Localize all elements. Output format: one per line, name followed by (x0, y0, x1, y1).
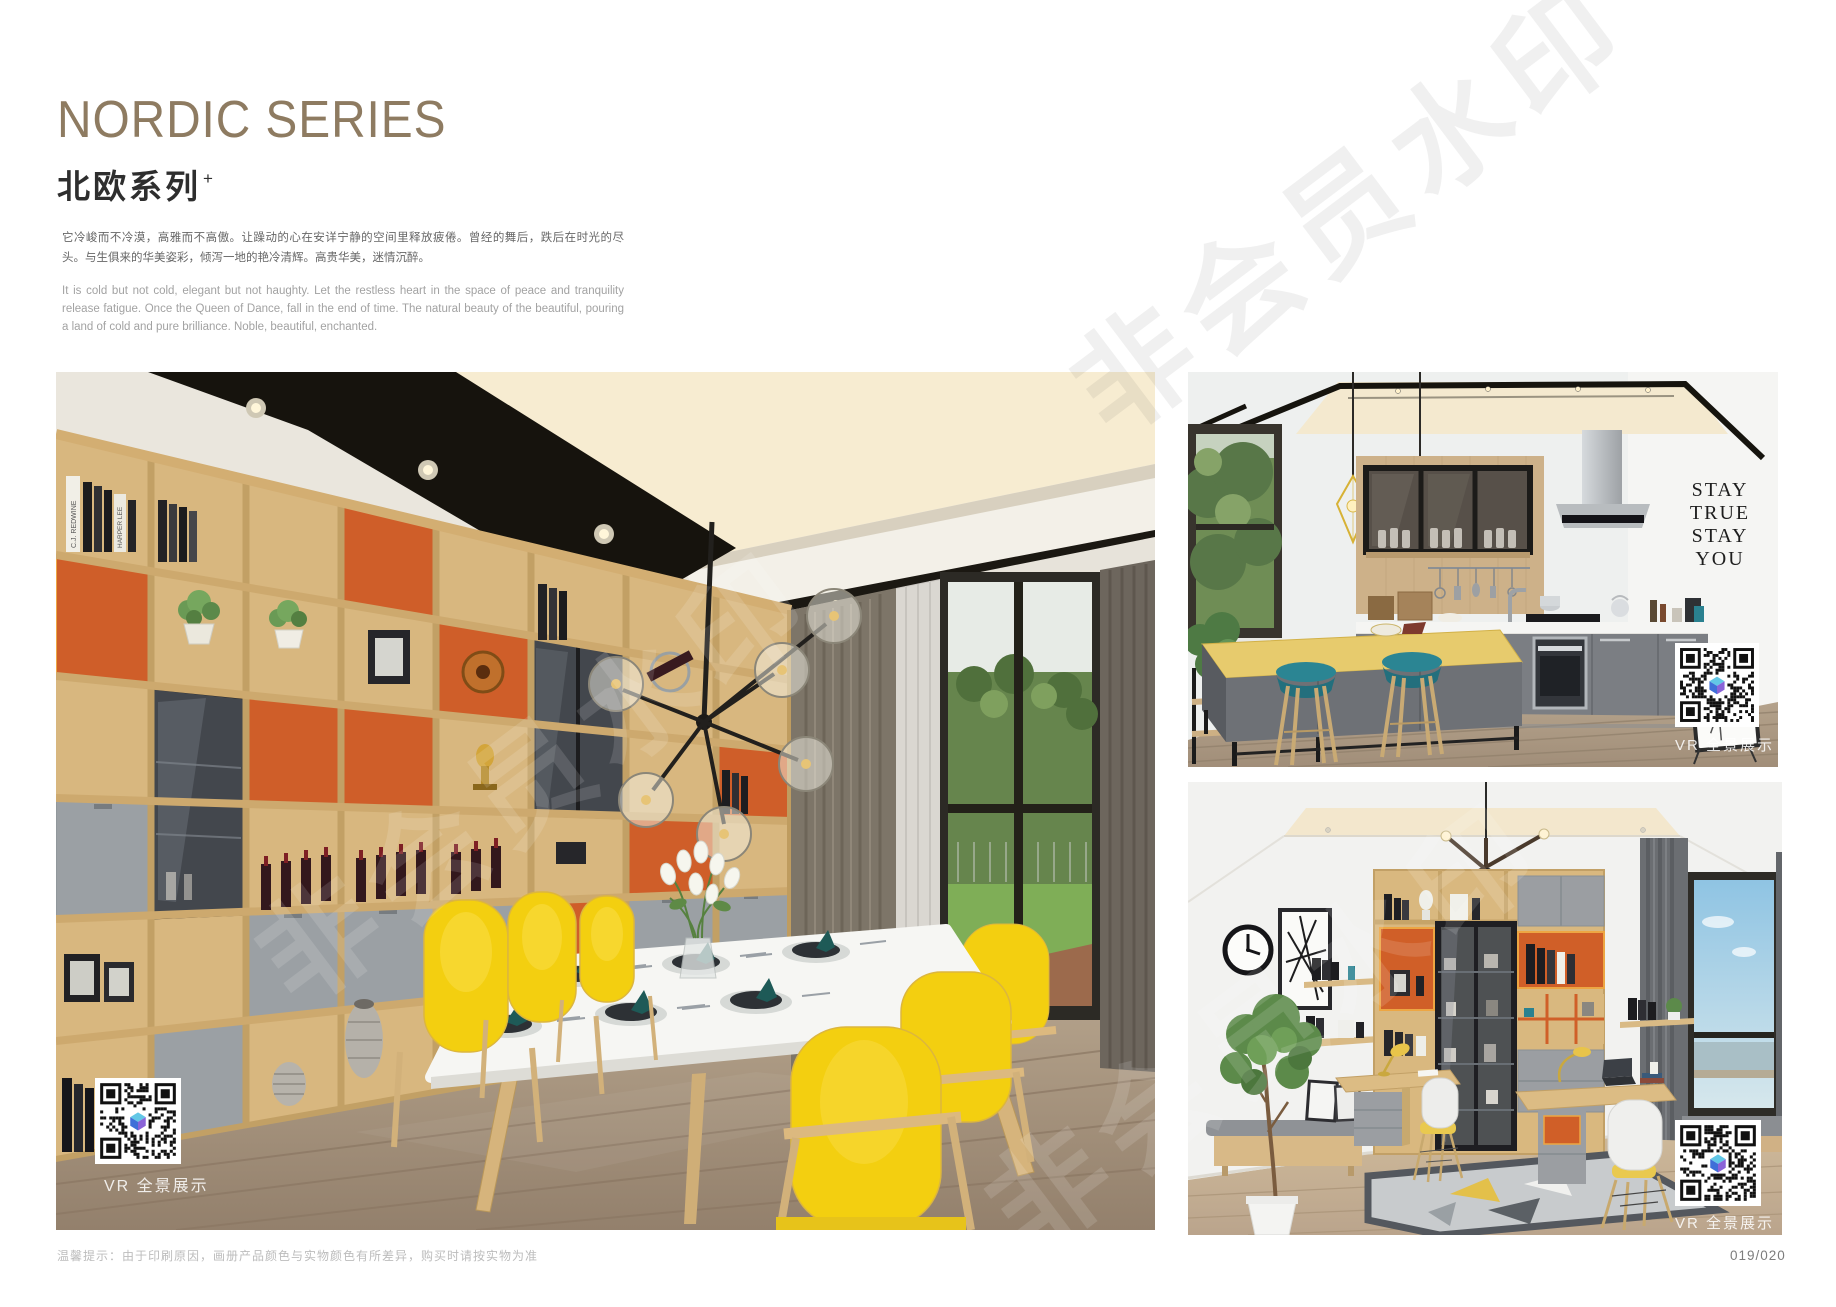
footer-note: 温馨提示：由于印刷原因，画册产品颜色与实物颜色有所差异，购买时请按实物为准 (57, 1247, 538, 1264)
study-room-photo: VR 全景展示 (1188, 782, 1782, 1235)
abstract-art-frame (1280, 910, 1330, 1008)
book-spine: HARPER LEE (117, 506, 124, 548)
study-window (1686, 872, 1782, 1116)
page-subtitle: 北欧系列+ (57, 160, 216, 208)
vr-panorama-label: VR 全景展示 (104, 1172, 209, 1196)
subtitle-plus: + (203, 169, 216, 188)
wall-clock (1225, 927, 1271, 973)
vr-panorama-label: VR 全景展示 (1675, 1212, 1774, 1233)
description-en: It is cold but not cold, elegant but not… (62, 282, 624, 336)
vr-qr-code (1675, 1120, 1761, 1206)
vr-qr-code (95, 1078, 181, 1164)
dining-room-photo: C.J. REDWINE HARPER LEE (56, 372, 1155, 1230)
svg-text:YOU: YOU (1695, 548, 1744, 570)
svg-text:TRUE: TRUE (1690, 502, 1750, 524)
kitchen-window (1188, 424, 1282, 646)
vr-qr-code (1675, 643, 1759, 727)
dining-room-scene: C.J. REDWINE HARPER LEE (56, 372, 1155, 1230)
book-spine: C.J. REDWINE (71, 500, 78, 548)
description-zh: 它冷峻而不冷漠，高雅而不高傲。让躁动的心在安详宁静的空间里释放疲倦。曾经的舞后，… (62, 228, 624, 268)
catalog-page: NORDIC SERIES 北欧系列+ 它冷峻而不冷漠，高雅而不高傲。让躁动的心… (0, 0, 1836, 1307)
page-title: NORDIC SERIES (57, 92, 446, 149)
svg-text:STAY: STAY (1692, 525, 1749, 547)
dining-curtain-right (1100, 560, 1155, 1072)
kitchen-photo: STAY TRUE STAY YOU VR 全景展示 (1188, 372, 1778, 767)
vr-panorama-label: VR 全景展示 (1675, 734, 1774, 755)
svg-text:STAY: STAY (1692, 479, 1749, 501)
page-number: 019/020 (1730, 1248, 1786, 1263)
wall-art-stay-true: STAY TRUE STAY YOU (1690, 479, 1750, 570)
